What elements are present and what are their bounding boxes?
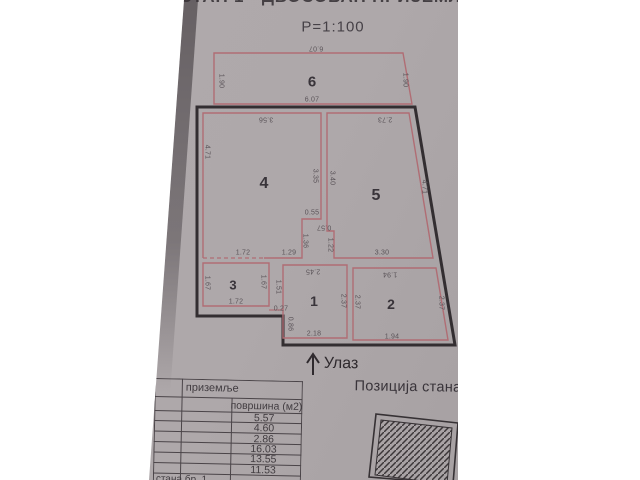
room2-outline xyxy=(353,268,448,340)
floor-plan-drawing xyxy=(0,0,640,480)
dim-room2-bottom: 1.94 xyxy=(385,334,399,341)
dim-room3-bottom: 1.72 xyxy=(229,299,243,306)
table-value-6: 11.53 xyxy=(250,464,276,477)
dim-room2-left: 2.37 xyxy=(354,295,361,309)
dim-room1-top: 2.45 xyxy=(306,268,320,275)
document-photo: СТАН 1 - ДВОСОБАН ПРИЗЕМЉЕ Р=1:100 xyxy=(0,0,640,480)
room-label-6: 6 xyxy=(308,74,316,91)
room-label-1: 1 xyxy=(310,293,318,309)
dim-step-mid: 0.57 xyxy=(317,224,331,231)
dim-room5-right: 4.71 xyxy=(421,180,428,194)
position-title: Позиција стана xyxy=(354,378,461,395)
table-floor-header: приземље xyxy=(186,382,239,395)
dim-step-top: 0.55 xyxy=(305,210,319,217)
dim-room1-step: 0.27 xyxy=(274,306,288,313)
dim-hall-left: 1.72 xyxy=(236,250,250,257)
entrance-label: Улаз xyxy=(324,355,359,374)
dim-mid-wall-right: 3.40 xyxy=(329,171,336,185)
dim-room3-left: 1.67 xyxy=(204,276,211,290)
dim-room2-right: 2.37 xyxy=(438,296,445,310)
dim-mid-wall-left: 3.35 xyxy=(312,169,319,183)
dim-room4-top: 3.56 xyxy=(259,116,273,123)
dim-room6-top: 6.07 xyxy=(309,45,323,52)
dim-room1-notch: 0.86 xyxy=(287,317,294,331)
dim-room1-right: 2.37 xyxy=(340,294,347,308)
dim-room3-right: 1.67 xyxy=(260,275,267,289)
room-label-2: 2 xyxy=(387,296,395,312)
room-label-4: 4 xyxy=(260,175,269,193)
dim-hall-right: 3.30 xyxy=(375,250,389,257)
dim-hall-mid: 1.29 xyxy=(282,250,296,257)
dim-room4-left: 4.71 xyxy=(204,145,211,159)
screenshot-root: СТАН 1 - ДВОСОБАН ПРИЗЕМЉЕ Р=1:100 xyxy=(0,0,640,480)
dim-drop-left: 1.36 xyxy=(302,234,309,248)
dim-room6-right: 1.90 xyxy=(402,73,409,87)
dim-room2-top: 1.94 xyxy=(383,271,397,278)
dim-drop-right: 1.22 xyxy=(327,238,334,252)
room-label-3: 3 xyxy=(229,278,236,293)
table-area-header: површина (м2) xyxy=(230,399,302,413)
dim-room1-left: 1.51 xyxy=(275,280,282,294)
dim-room6-bottom: 6.07 xyxy=(305,97,319,104)
area-table: приземље површина (м2) 5.57 4.60 2.86 16… xyxy=(153,378,303,480)
entrance-arrow-icon xyxy=(307,354,319,375)
dim-room5-top: 2.73 xyxy=(378,116,392,123)
room5-outline xyxy=(327,113,433,258)
position-hatch-shape xyxy=(375,420,452,480)
dim-room1-bottom: 2.18 xyxy=(307,331,321,338)
room-label-5: 5 xyxy=(372,187,381,205)
dim-room6-left: 1.90 xyxy=(218,74,225,88)
